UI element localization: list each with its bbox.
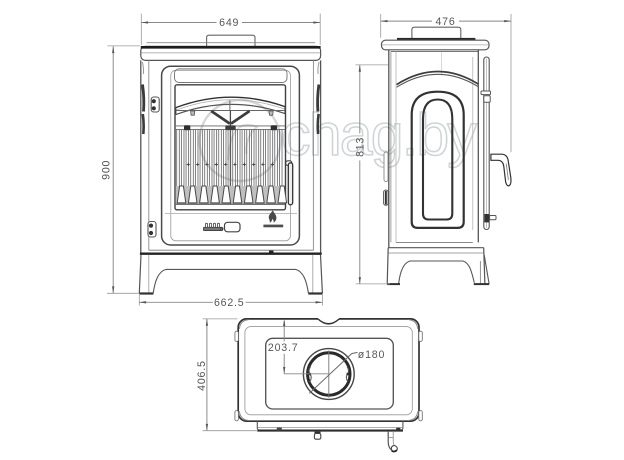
svg-text:649: 649: [219, 17, 239, 29]
svg-text:813: 813: [354, 137, 366, 157]
svg-text:ø180: ø180: [358, 349, 385, 361]
svg-text:203.7: 203.7: [268, 342, 299, 354]
svg-text:chag.by: chag.by: [281, 102, 477, 168]
svg-text:476: 476: [435, 16, 455, 28]
svg-text:662.5: 662.5: [214, 297, 245, 309]
svg-text:406.5: 406.5: [196, 360, 208, 391]
svg-text:900: 900: [101, 160, 113, 180]
